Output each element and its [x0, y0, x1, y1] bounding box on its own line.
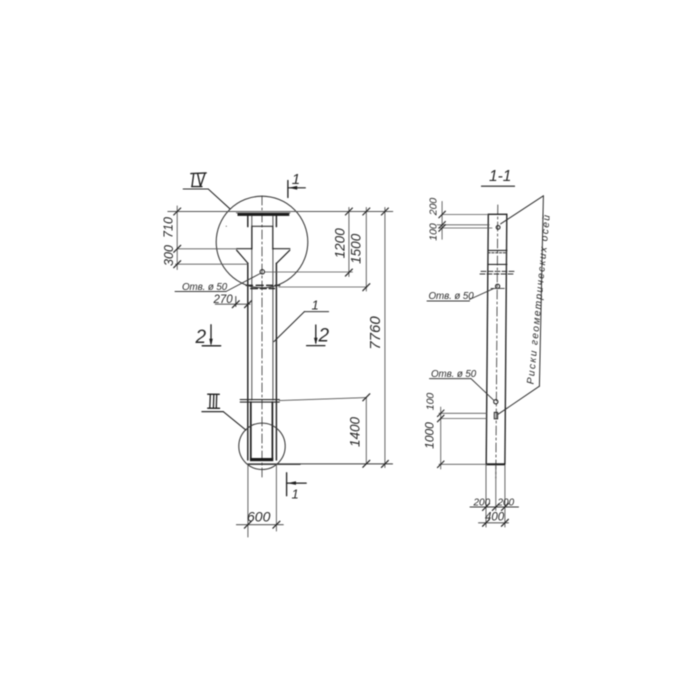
svg-text:7760: 7760	[367, 316, 384, 350]
svg-text:1: 1	[292, 486, 299, 501]
svg-text:200: 200	[428, 198, 440, 217]
svg-text:1400: 1400	[348, 416, 363, 447]
svg-text:Отв. ø 50: Отв. ø 50	[429, 291, 475, 302]
svg-text:300: 300	[162, 245, 176, 266]
svg-text:100: 100	[428, 223, 440, 241]
svg-text:710: 710	[162, 217, 176, 238]
svg-text:400: 400	[485, 512, 505, 524]
svg-text:1: 1	[292, 171, 300, 188]
svg-text:1200: 1200	[333, 228, 348, 259]
svg-text:1000: 1000	[423, 422, 437, 449]
svg-text:100: 100	[425, 393, 437, 411]
svg-text:600: 600	[247, 509, 271, 525]
svg-text:200: 200	[473, 498, 491, 509]
svg-text:1500: 1500	[349, 233, 364, 264]
svg-text:Отв. ø 50: Отв. ø 50	[182, 282, 228, 293]
svg-text:1: 1	[312, 298, 319, 313]
svg-text:2: 2	[318, 326, 330, 347]
svg-text:200: 200	[497, 498, 515, 509]
svg-text:1-1: 1-1	[489, 168, 511, 185]
svg-text:Риски геометрических осей: Риски геометрических осей	[526, 214, 553, 385]
svg-text:2: 2	[195, 327, 207, 348]
